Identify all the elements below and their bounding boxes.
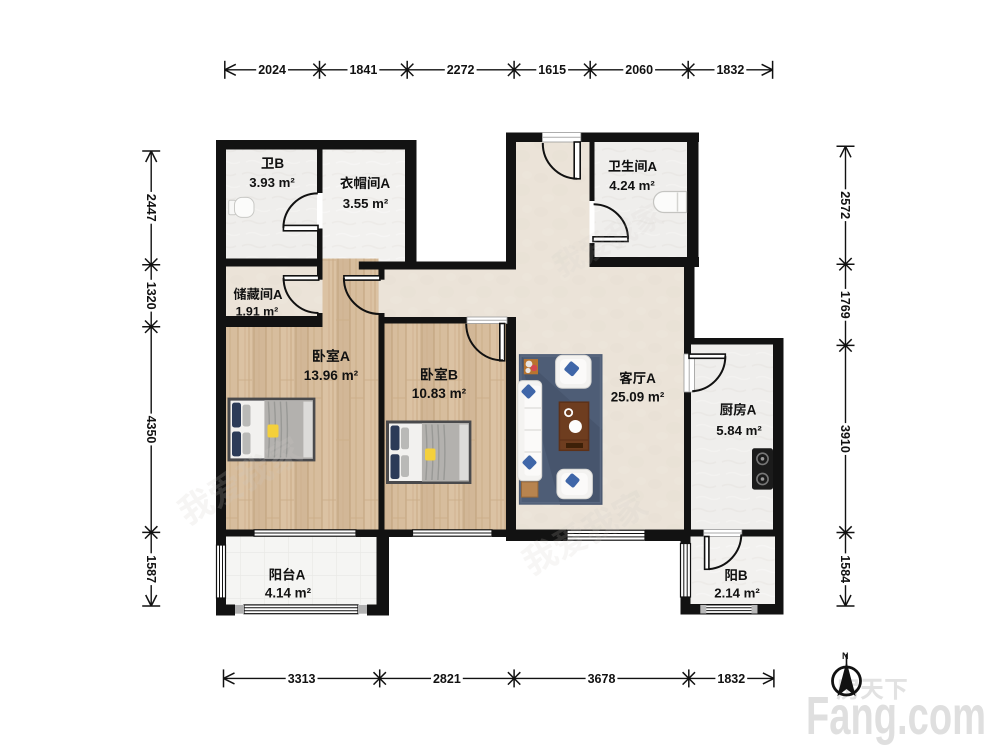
- svg-text:A: A: [273, 287, 283, 302]
- svg-text:3.55 m²: 3.55 m²: [343, 196, 389, 211]
- svg-text:Fang.com: Fang.com: [806, 686, 986, 746]
- svg-text:3313: 3313: [288, 672, 316, 686]
- svg-text:2272: 2272: [447, 63, 475, 77]
- svg-text:B: B: [448, 367, 458, 383]
- svg-text:2024: 2024: [258, 63, 286, 77]
- svg-text:25.09 m²: 25.09 m²: [611, 389, 665, 404]
- svg-text:1320: 1320: [144, 282, 158, 310]
- svg-text:2060: 2060: [625, 63, 653, 77]
- svg-text:3678: 3678: [588, 672, 616, 686]
- svg-text:A: A: [648, 159, 658, 174]
- svg-text:3910: 3910: [838, 425, 852, 453]
- svg-text:3.93 m²: 3.93 m²: [249, 175, 295, 190]
- svg-text:A: A: [646, 371, 656, 386]
- svg-text:2.14 m²: 2.14 m²: [714, 585, 760, 600]
- svg-text:10.83 m²: 10.83 m²: [412, 386, 467, 401]
- svg-text:4.14 m²: 4.14 m²: [265, 585, 312, 600]
- svg-text:1584: 1584: [838, 555, 852, 583]
- svg-text:4350: 4350: [144, 416, 158, 444]
- svg-text:13.96 m²: 13.96 m²: [304, 368, 359, 383]
- svg-text:1615: 1615: [538, 63, 566, 77]
- svg-text:A: A: [340, 348, 350, 364]
- svg-text:2447: 2447: [144, 194, 158, 222]
- svg-text:1769: 1769: [838, 291, 852, 319]
- svg-text:1587: 1587: [144, 555, 158, 583]
- svg-text:N: N: [842, 651, 849, 661]
- svg-text:A: A: [380, 176, 390, 191]
- svg-text:2572: 2572: [838, 191, 852, 219]
- svg-text:1832: 1832: [717, 672, 745, 686]
- svg-text:2821: 2821: [433, 672, 461, 686]
- svg-text:B: B: [738, 568, 748, 583]
- svg-text:1.91 m²: 1.91 m²: [236, 305, 279, 319]
- svg-text:A: A: [747, 402, 757, 417]
- svg-text:B: B: [274, 156, 284, 171]
- svg-text:1841: 1841: [349, 63, 377, 77]
- svg-text:1832: 1832: [716, 63, 744, 77]
- svg-text:A: A: [296, 567, 306, 582]
- svg-text:5.84 m²: 5.84 m²: [716, 423, 762, 438]
- svg-text:4.24 m²: 4.24 m²: [609, 178, 655, 193]
